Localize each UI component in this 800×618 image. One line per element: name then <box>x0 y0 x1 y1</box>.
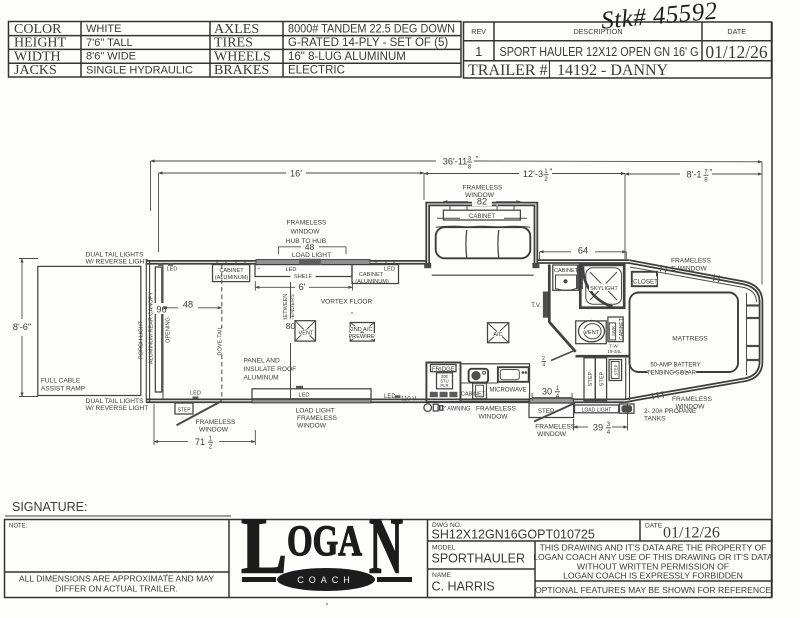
svg-text:CABINET: CABINET <box>554 268 579 274</box>
svg-text:1: 1 <box>475 44 482 59</box>
svg-text:1: 1 <box>556 385 560 392</box>
svg-text:OGA: OGA <box>287 518 362 565</box>
svg-text:LOGAN COACH IS EXPRESSLY FORBI: LOGAN COACH IS EXPRESSLY FORBIDDEN <box>563 571 743 581</box>
svg-text:FRAMELESS: FRAMELESS <box>463 184 504 191</box>
svg-text:CABINET: CABINET <box>359 272 384 278</box>
svg-text:3: 3 <box>468 156 472 163</box>
svg-text:SINGLE HYDRAULIC: SINGLE HYDRAULIC <box>86 64 193 76</box>
svg-text:FRAMELESS: FRAMELESS <box>535 424 576 431</box>
svg-text:MATTRESS: MATTRESS <box>672 336 708 343</box>
svg-text:SH12X12GN16GOPT010725: SH12X12GN16GOPT010725 <box>432 528 595 542</box>
svg-text:2: 2 <box>544 176 548 183</box>
svg-text:LOAD LIGHT: LOAD LIGHT <box>292 252 331 259</box>
svg-text:50-AMP BATTERY: 50-AMP BATTERY <box>650 363 700 369</box>
svg-text:39: 39 <box>593 422 603 432</box>
svg-text:LOAD LIGHT: LOAD LIGHT <box>582 407 612 413</box>
svg-text:WINDOW: WINDOW <box>465 192 495 199</box>
svg-text:3: 3 <box>607 421 611 428</box>
svg-text:(ALUMINUM): (ALUMINUM) <box>355 279 389 285</box>
svg-text:71: 71 <box>195 437 205 447</box>
svg-text:W/ REVERSE LIGHT: W/ REVERSE LIGHT <box>86 258 149 265</box>
svg-text:01/12/26: 01/12/26 <box>705 42 767 62</box>
svg-text:OPTIONAL FEATURES MAY BE SHOWN: OPTIONAL FEATURES MAY BE SHOWN FOR REFER… <box>535 585 771 595</box>
svg-text:INSULATE ROOF: INSULATE ROOF <box>244 366 297 373</box>
svg-text:CABINET: CABINET <box>619 318 625 340</box>
svg-text:NOTE:: NOTE: <box>9 524 28 530</box>
svg-text:12'-3: 12'-3 <box>523 169 543 179</box>
svg-text:(ALUMINUM): (ALUMINUM) <box>215 275 249 281</box>
svg-text:G-RATED 14-PLY - SET OF (5): G-RATED 14-PLY - SET OF (5) <box>288 37 448 49</box>
svg-text:WINDOW: WINDOW <box>291 229 321 236</box>
svg-text:FRIDGE: FRIDGE <box>432 367 455 373</box>
svg-text:8000# TANDEM 22.5 DEG DOWN: 8000# TANDEM 22.5 DEG DOWN <box>288 24 455 36</box>
svg-text:30: 30 <box>542 387 552 397</box>
svg-text:BETWEEN: BETWEEN <box>283 294 289 322</box>
svg-text:FRAMELESS: FRAMELESS <box>287 220 328 227</box>
svg-text:C. HARRIS: C. HARRIS <box>432 580 495 594</box>
svg-text:SWR: SWR <box>611 326 616 336</box>
svg-text:WINDOW: WINDOW <box>199 427 229 434</box>
svg-text:4: 4 <box>607 429 611 436</box>
svg-text:STEP: STEP <box>613 364 618 375</box>
svg-text:T.V.: T.V. <box>531 303 541 309</box>
svg-text:": " <box>476 155 479 164</box>
svg-text:DUAL TAIL LIGHTS: DUAL TAIL LIGHTS <box>86 251 144 258</box>
svg-text:8: 8 <box>468 164 472 171</box>
svg-text:7'6" TALL: 7'6" TALL <box>86 37 133 49</box>
svg-text:01/12/26: 01/12/26 <box>663 525 720 542</box>
svg-text:8'6" WIDE: 8'6" WIDE <box>86 51 136 63</box>
svg-text:TRAILER #: TRAILER # <box>468 62 548 79</box>
svg-text:Stk# 45592: Stk# 45592 <box>600 0 719 35</box>
svg-text:DATE: DATE <box>645 523 663 530</box>
svg-text:1: 1 <box>209 436 213 443</box>
svg-text:WINDOW: WINDOW <box>676 404 706 411</box>
svg-text:JACKS: JACKS <box>14 63 57 78</box>
svg-text:FRAMELESS: FRAMELESS <box>672 396 713 403</box>
svg-text:ALUMINUM REAR CANOPY: ALUMINUM REAR CANOPY <box>148 292 154 364</box>
svg-text:LED: LED <box>299 392 310 398</box>
svg-text:2: 2 <box>209 444 213 451</box>
svg-text:MODEL: MODEL <box>432 545 456 552</box>
svg-text:VENT: VENT <box>584 330 600 336</box>
svg-text:FRAMELESS: FRAMELESS <box>476 406 517 413</box>
svg-text:ELECTRIC: ELECTRIC <box>288 64 345 76</box>
svg-text:8: 8 <box>704 177 708 184</box>
svg-text:PANEL AND: PANEL AND <box>244 358 281 365</box>
svg-text:PLR: PLR <box>440 383 448 388</box>
svg-text:SPORT HAULER 12X12 OPEN GN 16': SPORT HAULER 12X12 OPEN GN 16' G <box>500 45 699 59</box>
svg-text:19-34L: 19-34L <box>607 349 622 354</box>
svg-text:SIGNATURE:: SIGNATURE: <box>12 500 87 514</box>
svg-text:6': 6' <box>299 282 306 292</box>
svg-text:12' AWNING: 12' AWNING <box>439 405 471 412</box>
svg-text:96: 96 <box>156 305 166 315</box>
svg-text:FULL CABLE: FULL CABLE <box>41 378 81 385</box>
svg-text:LED: LED <box>167 267 178 273</box>
svg-text:7: 7 <box>704 169 708 176</box>
svg-text:TANKS: TANKS <box>644 416 666 423</box>
svg-text:PORCH LIGHT: PORCH LIGHT <box>139 320 145 359</box>
svg-text:VORTEX FLOOR: VORTEX FLOOR <box>321 299 373 306</box>
svg-text:LED: LED <box>286 267 297 273</box>
svg-text:ALL DIMENSIONS ARE APPROXIMATE: ALL DIMENSIONS ARE APPROXIMATE AND MAY <box>19 574 214 584</box>
svg-text:CLOSET: CLOSET <box>633 278 658 285</box>
svg-text:": " <box>710 168 713 177</box>
svg-text:WINDOW: WINDOW <box>297 423 327 430</box>
svg-text:LED: LED <box>384 394 396 400</box>
svg-text:A/C: A/C <box>493 332 502 338</box>
svg-text:": " <box>550 168 553 177</box>
svg-text:PREWIRE: PREWIRE <box>348 334 374 340</box>
svg-text:CABINET: CABINET <box>219 268 244 274</box>
svg-text:CABINET: CABINET <box>469 214 495 220</box>
svg-text:W/ REVERSE LIGHT: W/ REVERSE LIGHT <box>86 405 149 412</box>
svg-text:LOAD LIGHT: LOAD LIGHT <box>296 408 335 415</box>
svg-text:ASSIST RAMP: ASSIST RAMP <box>41 386 86 393</box>
svg-text:NAME: NAME <box>432 572 452 579</box>
svg-text:THIS DRAWING AND IT'S DATA ARE: THIS DRAWING AND IT'S DATA ARE THE PROPE… <box>540 543 767 553</box>
svg-text:8'-1: 8'-1 <box>686 170 701 180</box>
svg-text:36'-11: 36'-11 <box>443 157 468 167</box>
svg-text:CABINET: CABINET <box>461 392 486 398</box>
svg-text:COACH: COACH <box>297 575 355 585</box>
svg-text:BRAKES: BRAKES <box>214 63 269 78</box>
svg-text:OPENING: OPENING <box>165 317 171 343</box>
svg-text:VENT: VENT <box>299 331 315 337</box>
svg-text:2ND A/C: 2ND A/C <box>351 327 373 333</box>
svg-text:16" 8-LUG ALUMINUM: 16" 8-LUG ALUMINUM <box>288 51 406 63</box>
svg-text:110 V: 110 V <box>401 396 416 402</box>
svg-text:STEP: STEP <box>177 407 191 413</box>
svg-text:SHELF: SHELF <box>294 274 313 280</box>
svg-text:DUAL TAIL LIGHTS: DUAL TAIL LIGHTS <box>86 398 144 405</box>
svg-text:STEP: STEP <box>588 371 594 386</box>
svg-text:48: 48 <box>305 242 315 252</box>
svg-text:FRAMELESS: FRAMELESS <box>297 415 338 422</box>
svg-text:4: 4 <box>542 363 545 369</box>
svg-text:8'-6": 8'-6" <box>13 322 31 332</box>
svg-text:LED: LED <box>190 391 201 397</box>
svg-text:64: 64 <box>578 246 588 256</box>
svg-text:DATE: DATE <box>727 27 746 36</box>
svg-text:4: 4 <box>556 393 560 400</box>
svg-text:DIFFER ON ACTUAL TRAILER.: DIFFER ON ACTUAL TRAILER. <box>55 584 178 594</box>
svg-text:E-WINDOW: E-WINDOW <box>671 266 707 273</box>
svg-text:WINDOW: WINDOW <box>537 431 567 438</box>
svg-text:DOVE-TAIL: DOVE-TAIL <box>218 326 224 355</box>
svg-text:T-W: T-W <box>609 344 618 349</box>
svg-text:16': 16' <box>290 169 302 179</box>
svg-text:1: 1 <box>544 168 548 175</box>
svg-text:ALUMINUM: ALUMINUM <box>244 375 279 382</box>
svg-text:WINDOW: WINDOW <box>479 413 509 420</box>
svg-text:48: 48 <box>183 300 193 310</box>
svg-text:WHITE: WHITE <box>86 23 121 35</box>
svg-text:SKYLIGHT: SKYLIGHT <box>590 286 618 292</box>
svg-text:STEP: STEP <box>599 371 605 386</box>
svg-text:80: 80 <box>286 321 296 331</box>
svg-text:TENDING SOLAR: TENDING SOLAR <box>647 371 697 377</box>
svg-text:SPORTHAULER: SPORTHAULER <box>432 552 526 566</box>
svg-text:14192 - DANNY: 14192 - DANNY <box>557 62 669 79</box>
svg-text:MICROWAVE: MICROWAVE <box>490 388 527 394</box>
svg-text:FRAMELESS: FRAMELESS <box>196 419 237 426</box>
svg-text:REV: REV <box>471 27 486 36</box>
svg-text:LOGAN COACH ANY USE OF THIS DR: LOGAN COACH ANY USE OF THIS DRAWING OR I… <box>533 552 773 562</box>
svg-text:FRAMELESS: FRAMELESS <box>671 258 712 265</box>
svg-text:LED: LED <box>384 267 395 273</box>
